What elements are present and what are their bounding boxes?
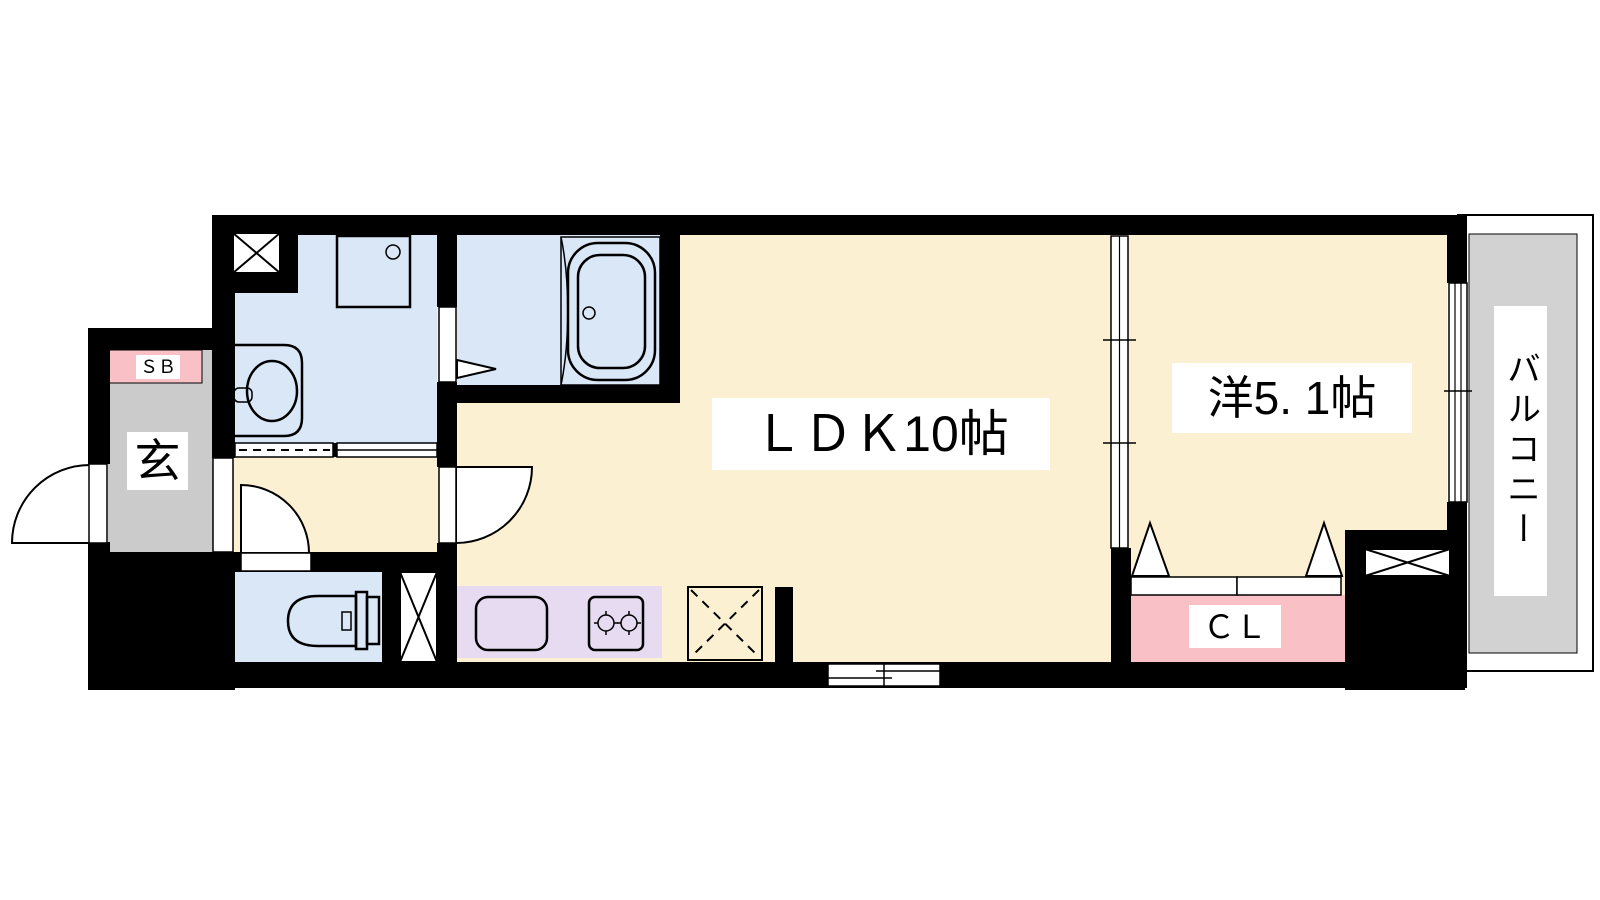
- wall-right-pillar-top: [1447, 215, 1467, 283]
- bathroom-floor: [457, 235, 660, 385]
- closet-label: ＣＬ: [1189, 605, 1281, 648]
- entrance-door-swing: [12, 465, 90, 543]
- washroom-sliding-door: [235, 443, 437, 457]
- wall-bottom: [88, 662, 1467, 688]
- pipe-shaft-bottom-right: [1365, 549, 1450, 576]
- ldk-window: [828, 664, 940, 686]
- closet-door-panel: [1131, 577, 1237, 595]
- pipe-shaft-top-left: [233, 233, 280, 273]
- western-room-label: 洋5. 1帖: [1172, 363, 1412, 433]
- shoe-box-label: ＳＢ: [136, 355, 180, 379]
- wall-mid-lower: [437, 543, 457, 662]
- wall-kitchen-pillar: [775, 587, 793, 662]
- wall-bath-bottom: [437, 385, 680, 403]
- floor-plan: ＬＤＫ10帖 洋5. 1帖 バルコニー 玄 ＳＢ ＣＬ: [0, 0, 1600, 900]
- refrigerator-space: [688, 587, 762, 660]
- wall-toilet-right: [382, 572, 400, 662]
- entrance-door-leaf: [89, 464, 107, 543]
- closet-door-panel: [1237, 577, 1341, 595]
- wall-entrance-top: [88, 328, 235, 350]
- entrance-label: 玄: [127, 432, 188, 490]
- bathroom-door-leaf: [439, 307, 456, 382]
- ldk-door-leaf: [439, 467, 456, 543]
- wall-mid-upper: [437, 215, 457, 307]
- wall-shaft-bottom-stub: [233, 273, 298, 293]
- pipe-shaft-toilet-side: [400, 572, 437, 662]
- wall-divider-bottom: [1111, 548, 1131, 662]
- toilet-door-leaf: [241, 553, 311, 571]
- balcony-label: バルコニー: [1494, 306, 1547, 596]
- entrance-opening: [213, 458, 233, 552]
- wall-top: [214, 215, 1467, 235]
- ldk-room-label: ＬＤＫ10帖: [712, 398, 1050, 470]
- wall-entrance-left-upper: [88, 350, 110, 464]
- wall-bath-right: [660, 215, 680, 403]
